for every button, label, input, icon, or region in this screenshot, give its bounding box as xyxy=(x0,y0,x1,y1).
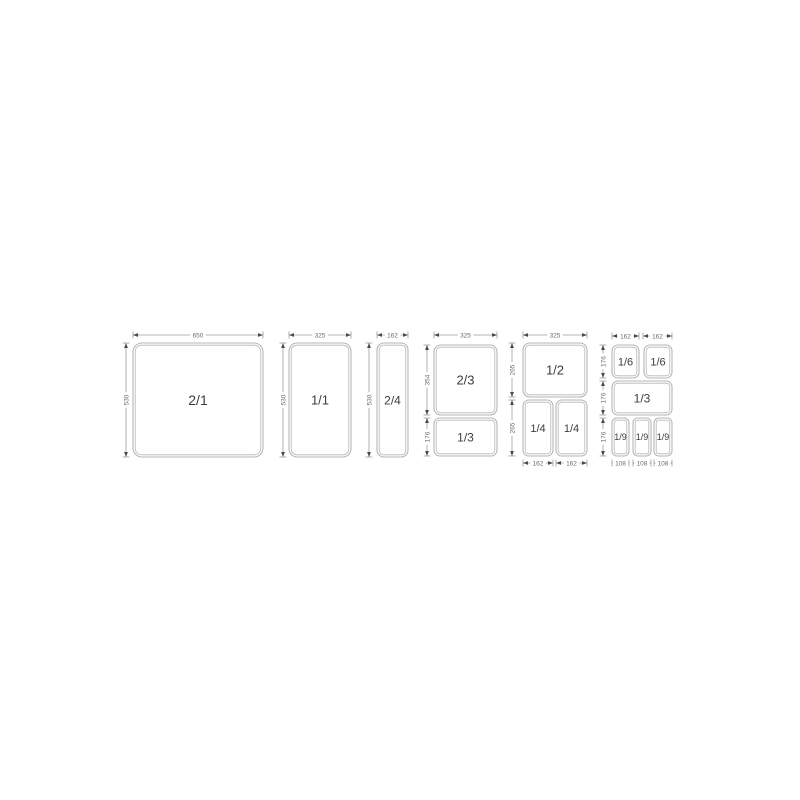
pan-size-label: 2/4 xyxy=(384,393,401,407)
dim-arrow-down-icon xyxy=(601,410,605,415)
dimension-650: 650 xyxy=(133,331,263,340)
dim-arrow-right-icon xyxy=(582,333,587,337)
dim-arrow-left-icon xyxy=(133,333,138,337)
dim-arrow-up-icon xyxy=(510,343,514,348)
dim-arrow-right-icon xyxy=(403,333,408,337)
pan-size-label: 1/3 xyxy=(457,430,474,444)
dimension-162: 162 xyxy=(377,331,408,340)
dimension-530: 530 xyxy=(122,343,130,457)
pan-1-4: 1/4 xyxy=(556,400,587,456)
dim-arrow-left-icon xyxy=(434,333,439,337)
dimension-108: 108 xyxy=(633,459,651,468)
dimension-530: 530 xyxy=(279,343,288,457)
dim-arrow-down-icon xyxy=(425,410,429,415)
dim-arrow-left-icon xyxy=(523,461,528,465)
dim-arrow-left-icon xyxy=(643,334,648,338)
dimension-176: 176 xyxy=(599,345,608,378)
dim-arrow-up-icon xyxy=(601,381,605,386)
dim-value: 650 xyxy=(193,332,204,339)
dim-arrow-right-icon xyxy=(548,461,553,465)
panel-2-3_1-3: 3253541762/31/3 xyxy=(423,331,497,456)
dim-arrow-down-icon xyxy=(425,451,429,456)
dimension-162: 162 xyxy=(556,459,587,468)
dim-arrow-right-icon xyxy=(582,461,587,465)
dim-value: 325 xyxy=(460,332,471,339)
dim-value: 265 xyxy=(509,422,516,433)
dim-arrow-left-icon xyxy=(612,334,617,338)
dim-arrow-up-icon xyxy=(601,418,605,423)
pan-1-4: 1/4 xyxy=(523,400,553,456)
dim-arrow-up-icon xyxy=(510,400,514,405)
pan-size-label: 1/6 xyxy=(650,356,665,368)
panel-2-4: 1625302/4 xyxy=(365,331,408,457)
pan-size-label: 2/1 xyxy=(188,392,208,408)
dimension-325: 325 xyxy=(523,331,587,340)
dim-arrow-down-icon xyxy=(601,373,605,378)
pan-size-label: 1/9 xyxy=(657,432,670,442)
dim-arrow-right-icon xyxy=(667,334,672,338)
dimension-176: 176 xyxy=(599,418,608,456)
dim-arrow-right-icon xyxy=(634,334,639,338)
dim-arrow-up-icon xyxy=(601,345,605,350)
pan-size-label: 1/6 xyxy=(618,356,633,368)
dim-value: 108 xyxy=(637,460,648,467)
dim-value: 265 xyxy=(509,364,516,375)
dimension-162: 162 xyxy=(612,332,639,341)
panel-1-1: 3255301/1 xyxy=(279,331,351,457)
dimension-265: 265 xyxy=(508,343,517,397)
dim-value: 108 xyxy=(615,460,626,467)
dim-arrow-right-icon xyxy=(346,333,351,337)
dim-value: 162 xyxy=(620,333,631,340)
pan-1-6: 1/6 xyxy=(644,345,672,378)
dim-value: 530 xyxy=(280,394,287,405)
pan-1-9: 1/9 xyxy=(654,418,672,456)
dim-arrow-up-icon xyxy=(367,343,371,348)
pan-2-4: 2/4 xyxy=(377,343,408,457)
pan-size-label: 1/4 xyxy=(564,423,579,435)
dim-arrow-down-icon xyxy=(601,451,605,456)
dim-arrow-down-icon xyxy=(510,451,514,456)
dim-arrow-left-icon xyxy=(377,333,382,337)
dim-arrow-down-icon xyxy=(510,392,514,397)
diagram-canvas: 6505302/13255301/11625302/43253541762/31… xyxy=(0,0,800,800)
panel-1-2_1-4: 3252652651621621/21/41/4 xyxy=(508,331,587,468)
dim-value: 162 xyxy=(652,333,663,340)
dimension-530: 530 xyxy=(365,343,374,457)
pan-size-label: 2/3 xyxy=(456,373,474,388)
dim-value: 176 xyxy=(600,356,607,367)
dim-value: 354 xyxy=(424,374,431,385)
pan-size-label: 1/1 xyxy=(311,393,329,408)
dim-value: 530 xyxy=(366,394,373,405)
panel-2-1: 6505302/1 xyxy=(122,331,263,457)
pan-1-9: 1/9 xyxy=(633,418,651,456)
pan-1-3: 1/3 xyxy=(434,418,497,456)
pan-2-3: 2/3 xyxy=(434,345,497,415)
dim-value: 325 xyxy=(550,332,561,339)
pan-1-6: 1/6 xyxy=(612,345,639,378)
dim-arrow-left-icon xyxy=(523,333,528,337)
dim-value: 530 xyxy=(123,394,130,405)
dim-value: 176 xyxy=(600,392,607,403)
dim-arrow-left-icon xyxy=(556,461,561,465)
pan-2-1: 2/1 xyxy=(133,343,263,457)
pan-1-2: 1/2 xyxy=(523,343,587,397)
dim-value: 176 xyxy=(424,431,431,442)
dimension-265: 265 xyxy=(508,400,517,456)
pan-1-9: 1/9 xyxy=(612,418,629,456)
dim-arrow-down-icon xyxy=(281,452,285,457)
pan-size-label: 1/9 xyxy=(614,432,627,442)
dim-value: 162 xyxy=(533,460,544,467)
dim-value: 162 xyxy=(566,460,577,467)
dim-value: 176 xyxy=(600,431,607,442)
dim-arrow-up-icon xyxy=(425,418,429,423)
pan-size-label: 1/4 xyxy=(530,423,545,435)
dim-arrow-up-icon xyxy=(425,345,429,350)
dimension-162: 162 xyxy=(643,332,672,341)
dimension-325: 325 xyxy=(289,331,351,340)
panel-1-6_1-3_1-9: 1621621761761761081081081/61/61/31/91/91… xyxy=(599,332,672,468)
dim-value: 325 xyxy=(315,332,326,339)
dim-arrow-left-icon xyxy=(289,333,294,337)
pan-size-label: 1/2 xyxy=(546,363,564,378)
pan-1-1: 1/1 xyxy=(289,343,351,457)
dim-value: 162 xyxy=(387,332,398,339)
dim-arrow-down-icon xyxy=(367,452,371,457)
dimension-108: 108 xyxy=(654,459,672,468)
dimension-162: 162 xyxy=(523,459,553,468)
pan-size-label: 1/3 xyxy=(634,391,651,405)
dim-arrow-down-icon xyxy=(124,452,128,457)
gastronorm-size-diagram: 6505302/13255301/11625302/43253541762/31… xyxy=(0,0,800,800)
dimension-325: 325 xyxy=(434,331,497,340)
dimension-176: 176 xyxy=(599,381,608,415)
dimension-176: 176 xyxy=(423,418,432,456)
dimension-108: 108 xyxy=(612,459,629,468)
pan-1-3: 1/3 xyxy=(612,381,672,415)
dim-arrow-right-icon xyxy=(258,333,263,337)
pan-size-label: 1/9 xyxy=(636,432,649,442)
dim-arrow-up-icon xyxy=(124,343,128,348)
dimension-354: 354 xyxy=(423,345,432,415)
dim-arrow-up-icon xyxy=(281,343,285,348)
dim-value: 108 xyxy=(658,460,669,467)
dim-arrow-right-icon xyxy=(492,333,497,337)
